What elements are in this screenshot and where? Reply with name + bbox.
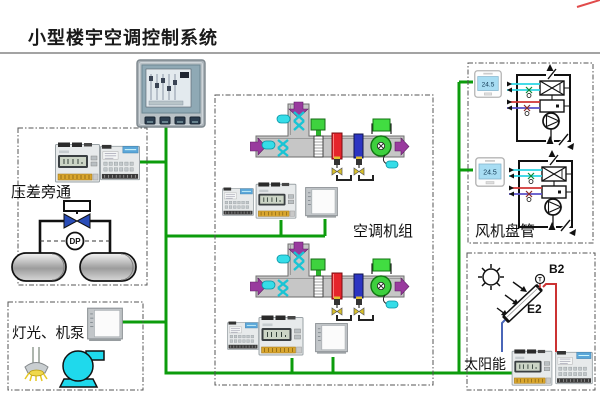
controller-icon: [256, 182, 296, 218]
section-label-solar: 太阳能: [464, 357, 506, 373]
section-label-fan-coil: 风机盘管: [475, 222, 535, 240]
fan-coil-diagram-1: [507, 64, 574, 150]
sun-icon: [478, 264, 504, 290]
screenshot-root: 小型楼宇空调控制系统 24.5: [0, 0, 600, 400]
ahu-diagram-2: [250, 242, 409, 320]
io-module-icon: [227, 322, 258, 350]
io-module-icon: [556, 351, 593, 384]
lamp-icon: [25, 347, 48, 381]
hot-pipe: [543, 284, 556, 352]
cold-pipe: [502, 320, 505, 352]
io-module-icon: [100, 145, 139, 180]
controller-icon: [512, 349, 552, 385]
wall-panel-icon: [88, 308, 123, 341]
wall-panel-icon: [316, 324, 348, 354]
controller-icon: [259, 316, 303, 356]
dp-sensor-label: DP: [69, 237, 81, 246]
lighting-pump-section: 灯光、机泵: [12, 308, 122, 387]
tank-icons: [12, 253, 136, 281]
thermostat-icon: [475, 71, 502, 98]
thermostat-icon: [476, 158, 504, 186]
hmi-touch-panel: [137, 60, 205, 127]
corner-red-mark: [577, 0, 600, 7]
io-module-icon: [222, 188, 253, 216]
svg-text:T: T: [538, 278, 542, 284]
system-diagram: 24.5: [0, 0, 600, 400]
fan-coil-section: 风机盘管: [475, 64, 576, 240]
section-label-ahu: 空调机组: [353, 223, 413, 240]
pump-icon: [60, 351, 104, 387]
bypass-valve-icon: [64, 201, 90, 228]
section-label-lighting-pump: 灯光、机泵: [12, 325, 85, 342]
wall-panel-icon: [306, 188, 338, 218]
section-label-pressure-bypass: 压差旁通: [11, 184, 71, 201]
pressure-bypass-section: 压差旁通 DP: [11, 143, 140, 282]
sensor-label-b2: B2: [549, 262, 565, 276]
ahu-section: 空调机组: [222, 102, 413, 355]
solar-section: T B2 E2 太阳能: [464, 262, 592, 385]
collector-label-e2: E2: [527, 302, 542, 316]
ahu-diagram-1: [250, 102, 409, 180]
controller-icon: [56, 143, 100, 183]
